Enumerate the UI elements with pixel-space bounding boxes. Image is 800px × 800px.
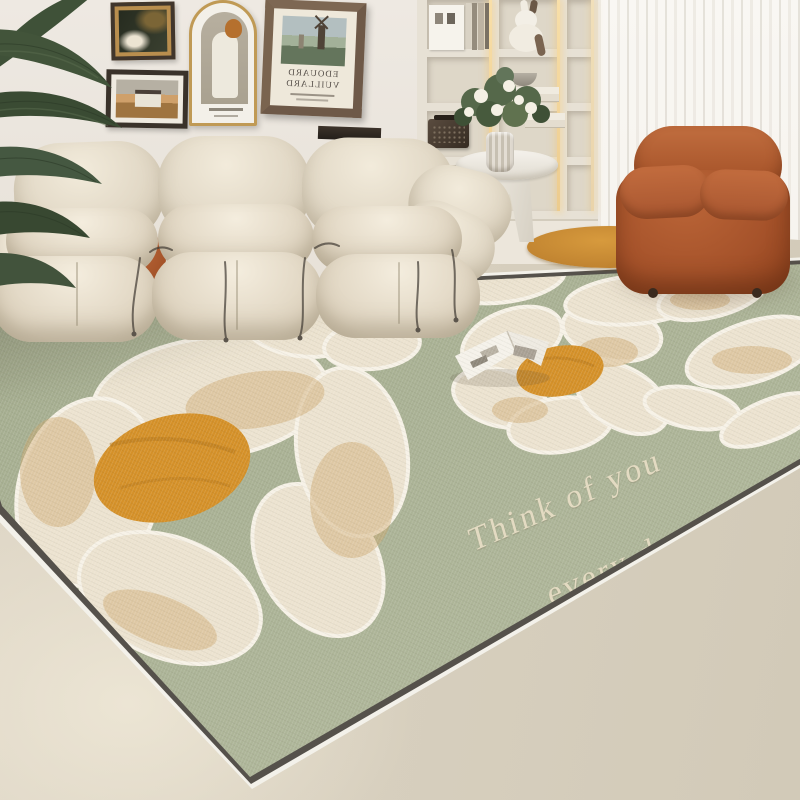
chair-seat — [616, 170, 790, 294]
palm-plant — [0, 0, 170, 310]
bunny-limb — [534, 33, 546, 56]
shelf-cell — [567, 0, 591, 49]
magazine-photo — [447, 13, 455, 24]
frame-arched-portrait — [189, 0, 257, 126]
portrait-caption-line — [214, 115, 238, 117]
windmill-small — [298, 34, 304, 48]
led-strip — [591, 0, 594, 211]
shelf-cell — [567, 165, 591, 211]
portrait-hood — [225, 19, 242, 38]
portrait-painting — [201, 12, 248, 104]
poster-title-mirrored: EDOUARD VUILLARD — [271, 66, 355, 92]
poster-caption-line — [296, 98, 328, 101]
chair-foot — [752, 288, 762, 298]
book-spine — [478, 3, 484, 50]
windmill-painting — [281, 16, 347, 67]
portrait-caption-line — [209, 108, 243, 111]
magazine-cover — [429, 5, 464, 50]
portrait-dress — [212, 32, 238, 98]
shelf-cell — [567, 57, 591, 103]
book-spine — [466, 3, 471, 49]
shelf-cell — [567, 111, 591, 157]
chair-seat-tuft — [619, 164, 712, 221]
chair-seat-tuft — [699, 168, 789, 221]
frame-windmill-poster: EDOUARD VUILLARD — [261, 0, 367, 118]
living-room-scene: EDOUARD VUILLARD — [0, 0, 800, 800]
poster-title-line2: VUILLARD — [271, 77, 354, 92]
chair-foot — [648, 288, 658, 298]
windmill — [317, 25, 325, 49]
bunny-plush — [503, 0, 547, 58]
magazine-photo — [435, 13, 443, 24]
poster-caption-line — [290, 93, 334, 97]
book-spine — [485, 3, 489, 49]
book-spine — [472, 3, 477, 50]
